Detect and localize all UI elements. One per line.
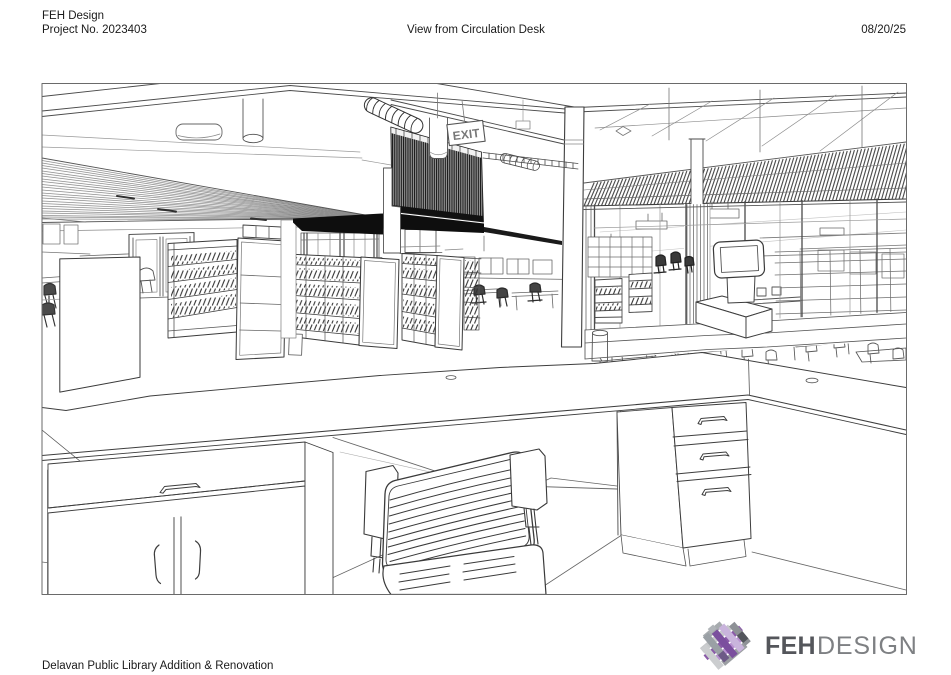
svg-text:DESIGN: DESIGN bbox=[817, 632, 918, 660]
svg-text:FEH: FEH bbox=[765, 632, 816, 660]
